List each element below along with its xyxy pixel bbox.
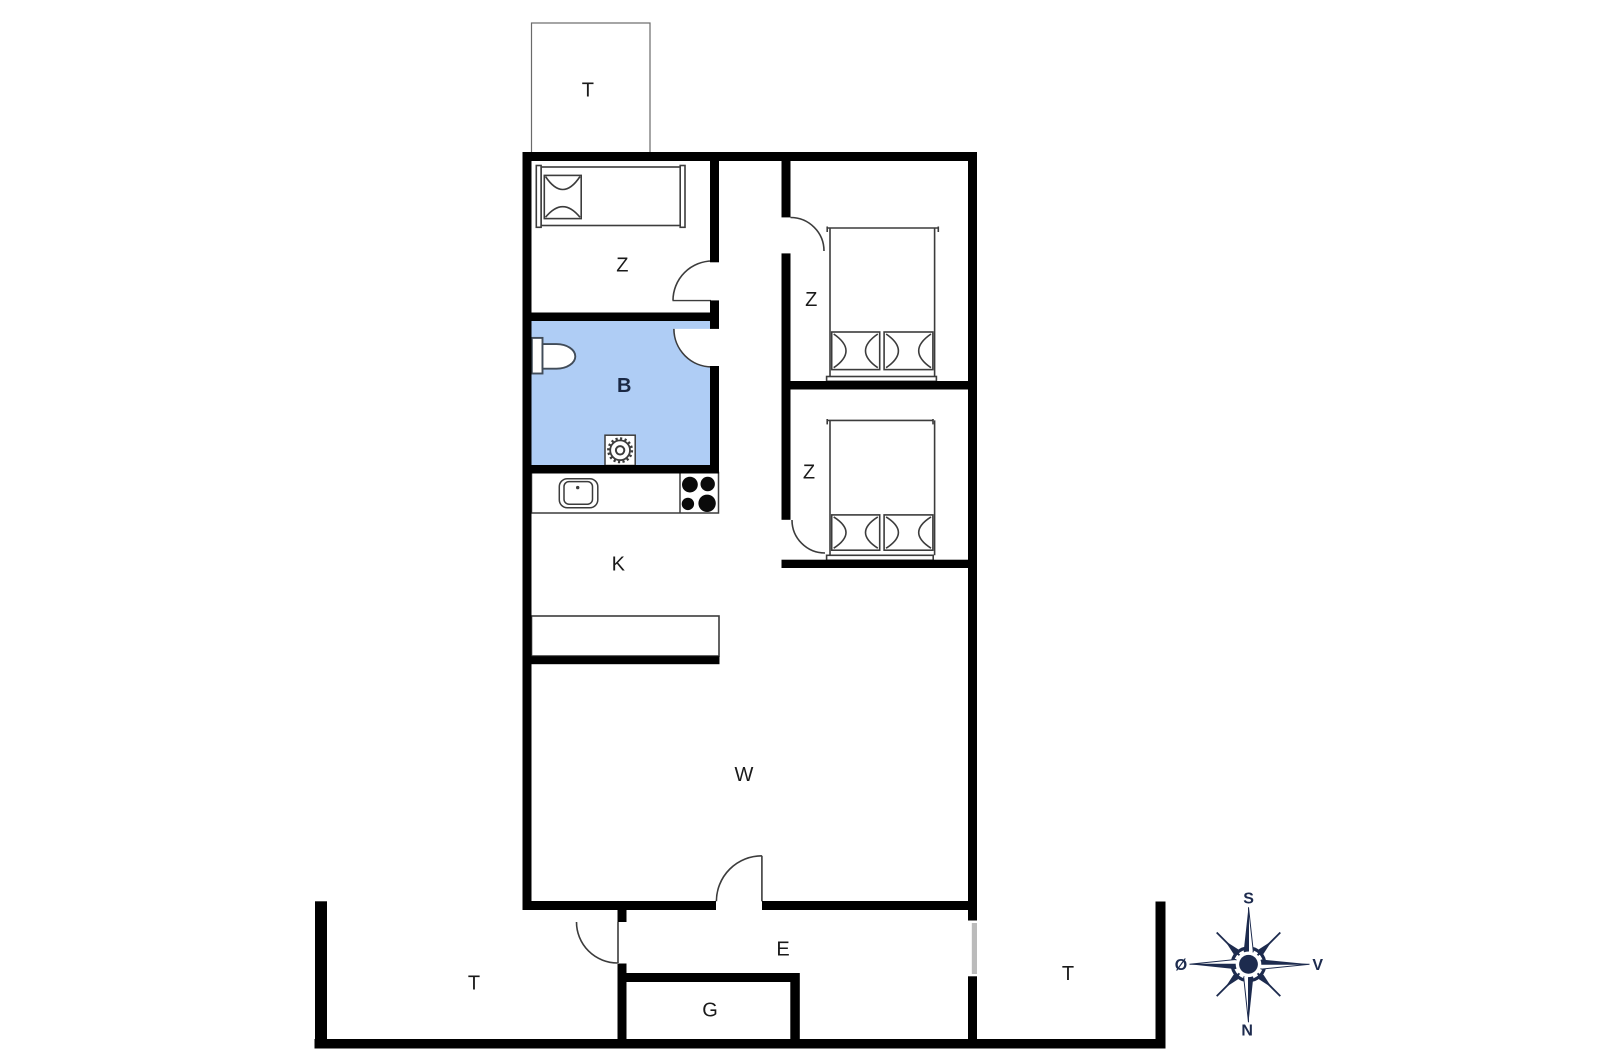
svg-text:E: E	[776, 939, 789, 961]
svg-text:V: V	[1312, 957, 1323, 974]
svg-text:N: N	[1241, 1023, 1253, 1040]
svg-text:W: W	[735, 764, 754, 786]
svg-text:S: S	[1243, 890, 1254, 907]
svg-text:Z: Z	[616, 255, 628, 277]
svg-text:T: T	[1062, 963, 1074, 985]
svg-text:T: T	[582, 79, 594, 101]
svg-text:Z: Z	[805, 289, 817, 311]
svg-text:G: G	[702, 1000, 718, 1022]
svg-text:Z: Z	[803, 462, 815, 484]
svg-text:Ø: Ø	[1175, 957, 1187, 974]
svg-text:B: B	[617, 375, 631, 397]
svg-text:T: T	[468, 973, 480, 995]
svg-text:K: K	[612, 554, 626, 576]
